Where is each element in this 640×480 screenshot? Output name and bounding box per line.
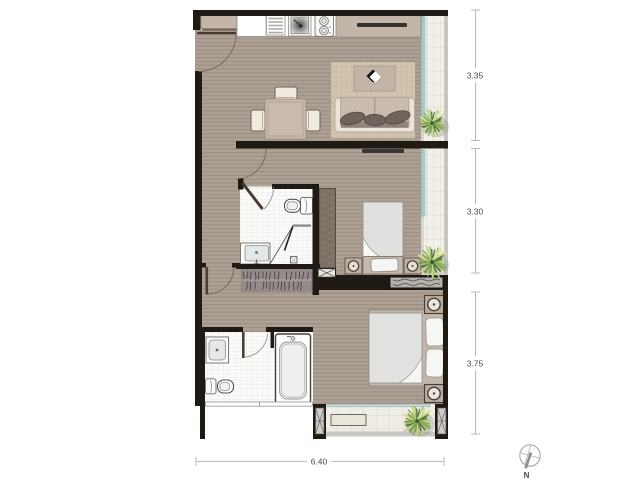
svg-text:6.40: 6.40 bbox=[311, 457, 328, 467]
svg-text:3.30: 3.30 bbox=[467, 207, 484, 217]
svg-text:3.75: 3.75 bbox=[467, 359, 484, 369]
svg-text:N: N bbox=[524, 471, 530, 480]
svg-text:3.35: 3.35 bbox=[467, 71, 484, 81]
